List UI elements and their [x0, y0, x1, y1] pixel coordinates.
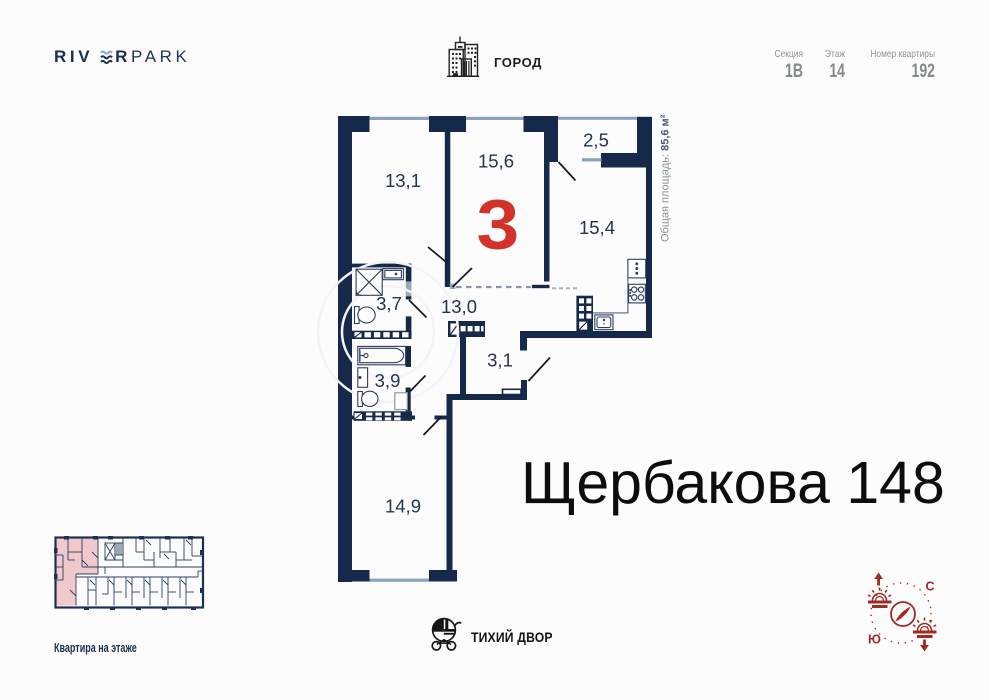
svg-text:13,0: 13,0 [441, 296, 477, 317]
svg-text:3,1: 3,1 [487, 350, 513, 371]
svg-text:Ю: Ю [868, 633, 881, 647]
svg-text:3,9: 3,9 [375, 370, 401, 391]
svg-text:13,1: 13,1 [385, 170, 421, 191]
svg-text:С: С [926, 580, 935, 594]
svg-text:14,9: 14,9 [385, 496, 421, 517]
svg-text:2,5: 2,5 [583, 130, 609, 151]
svg-text:3,7: 3,7 [376, 293, 402, 314]
svg-text:15,6: 15,6 [478, 151, 514, 172]
svg-text:Общая площадь: 85,6 м²: Общая площадь: 85,6 м² [660, 114, 672, 242]
svg-text:3: 3 [476, 184, 519, 263]
svg-text:15,4: 15,4 [579, 217, 615, 238]
